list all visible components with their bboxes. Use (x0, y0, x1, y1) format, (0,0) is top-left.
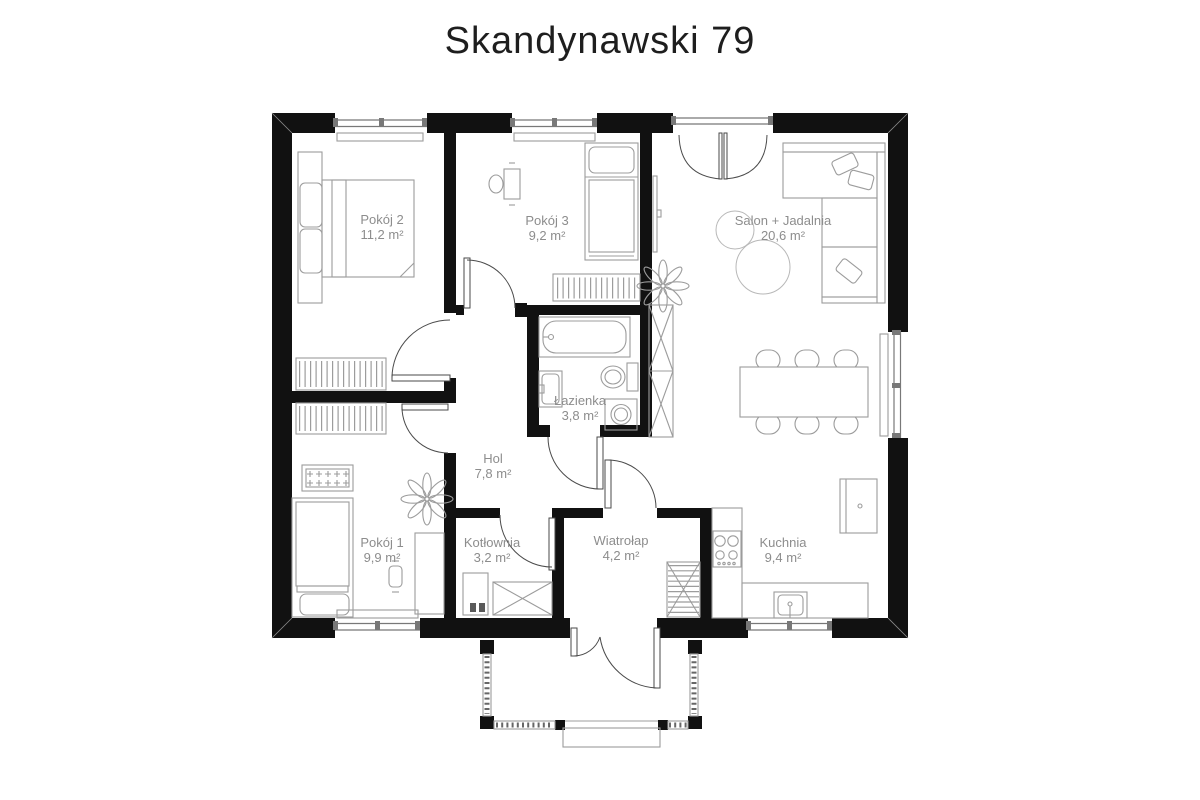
wardrobe-pokoj3 (553, 274, 640, 301)
built-in-wardrobe-salon (649, 305, 673, 437)
room-area: 3,8 m² (554, 408, 606, 423)
hob (713, 531, 741, 567)
room-name: Pokój 2 (360, 212, 403, 227)
desk-pokoj3 (489, 163, 520, 205)
room-name: Pokój 1 (360, 535, 403, 550)
room-name: Kotłownia (464, 535, 520, 550)
wardrobe-pokoj2 (296, 358, 386, 390)
door-pokoj3 (464, 258, 515, 308)
window-kuchnia (746, 621, 832, 630)
room-name: Łazienka (554, 393, 606, 408)
room-area: 11,2 m² (360, 227, 403, 242)
bed-single-pokoj1 (292, 498, 353, 617)
bed-single-pokoj3 (585, 143, 638, 260)
door-pokoj2 (392, 320, 450, 381)
dining-set (740, 350, 868, 434)
boiler-unit (493, 582, 552, 615)
room-area: 20,6 m² (735, 228, 832, 243)
window-pokoj2 (333, 118, 427, 141)
entry-wardrobe (667, 562, 700, 617)
water-heater (463, 573, 488, 615)
fridge (840, 479, 877, 533)
room-area: 9,4 m² (760, 550, 807, 565)
french-door-salon (671, 116, 773, 179)
room-area: 9,2 m² (525, 228, 568, 243)
door-wiatrolap (605, 460, 656, 508)
room-label-hol: Hol 7,8 m² (475, 451, 512, 481)
room-name: Pokój 3 (525, 213, 568, 228)
door-pokoj1 (402, 404, 448, 453)
room-label-wiatrolap: Wiatrołap 4,2 m² (594, 533, 649, 563)
kitchen-sink (774, 592, 807, 618)
entrance-door (571, 628, 660, 688)
floor-plan-page: Skandynawski 79 (0, 0, 1200, 800)
wardrobe-pokoj1 (296, 403, 386, 434)
toilet (601, 363, 638, 391)
tv (653, 176, 661, 252)
room-area: 9,9 m² (360, 550, 403, 565)
room-area: 7,8 m² (475, 466, 512, 481)
room-label-pokoj1: Pokój 1 9,9 m² (360, 535, 403, 565)
room-label-kotlownia: Kotłownia 3,2 m² (464, 535, 520, 565)
porch (480, 640, 702, 747)
room-label-pokoj3: Pokój 3 9,2 m² (525, 213, 568, 243)
room-label-pokoj2: Pokój 2 11,2 m² (360, 212, 403, 242)
room-name: Salon + Jadalnia (735, 213, 832, 228)
window-pokoj1 (333, 610, 420, 630)
door-lazienka (548, 437, 603, 489)
room-label-kuchnia: Kuchnia 9,4 m² (760, 535, 807, 565)
room-label-lazienka: Łazienka 3,8 m² (554, 393, 606, 423)
window-pokoj3 (510, 118, 597, 141)
entry-step (563, 728, 660, 747)
room-name: Kuchnia (760, 535, 807, 550)
room-name: Wiatrołap (594, 533, 649, 548)
window-salon-east (880, 330, 901, 438)
room-name: Hol (475, 451, 512, 466)
room-area: 3,2 m² (464, 550, 520, 565)
dresser (302, 465, 353, 491)
room-label-salon: Salon + Jadalnia 20,6 m² (735, 213, 832, 243)
bathtub (539, 317, 630, 357)
room-area: 4,2 m² (594, 548, 649, 563)
